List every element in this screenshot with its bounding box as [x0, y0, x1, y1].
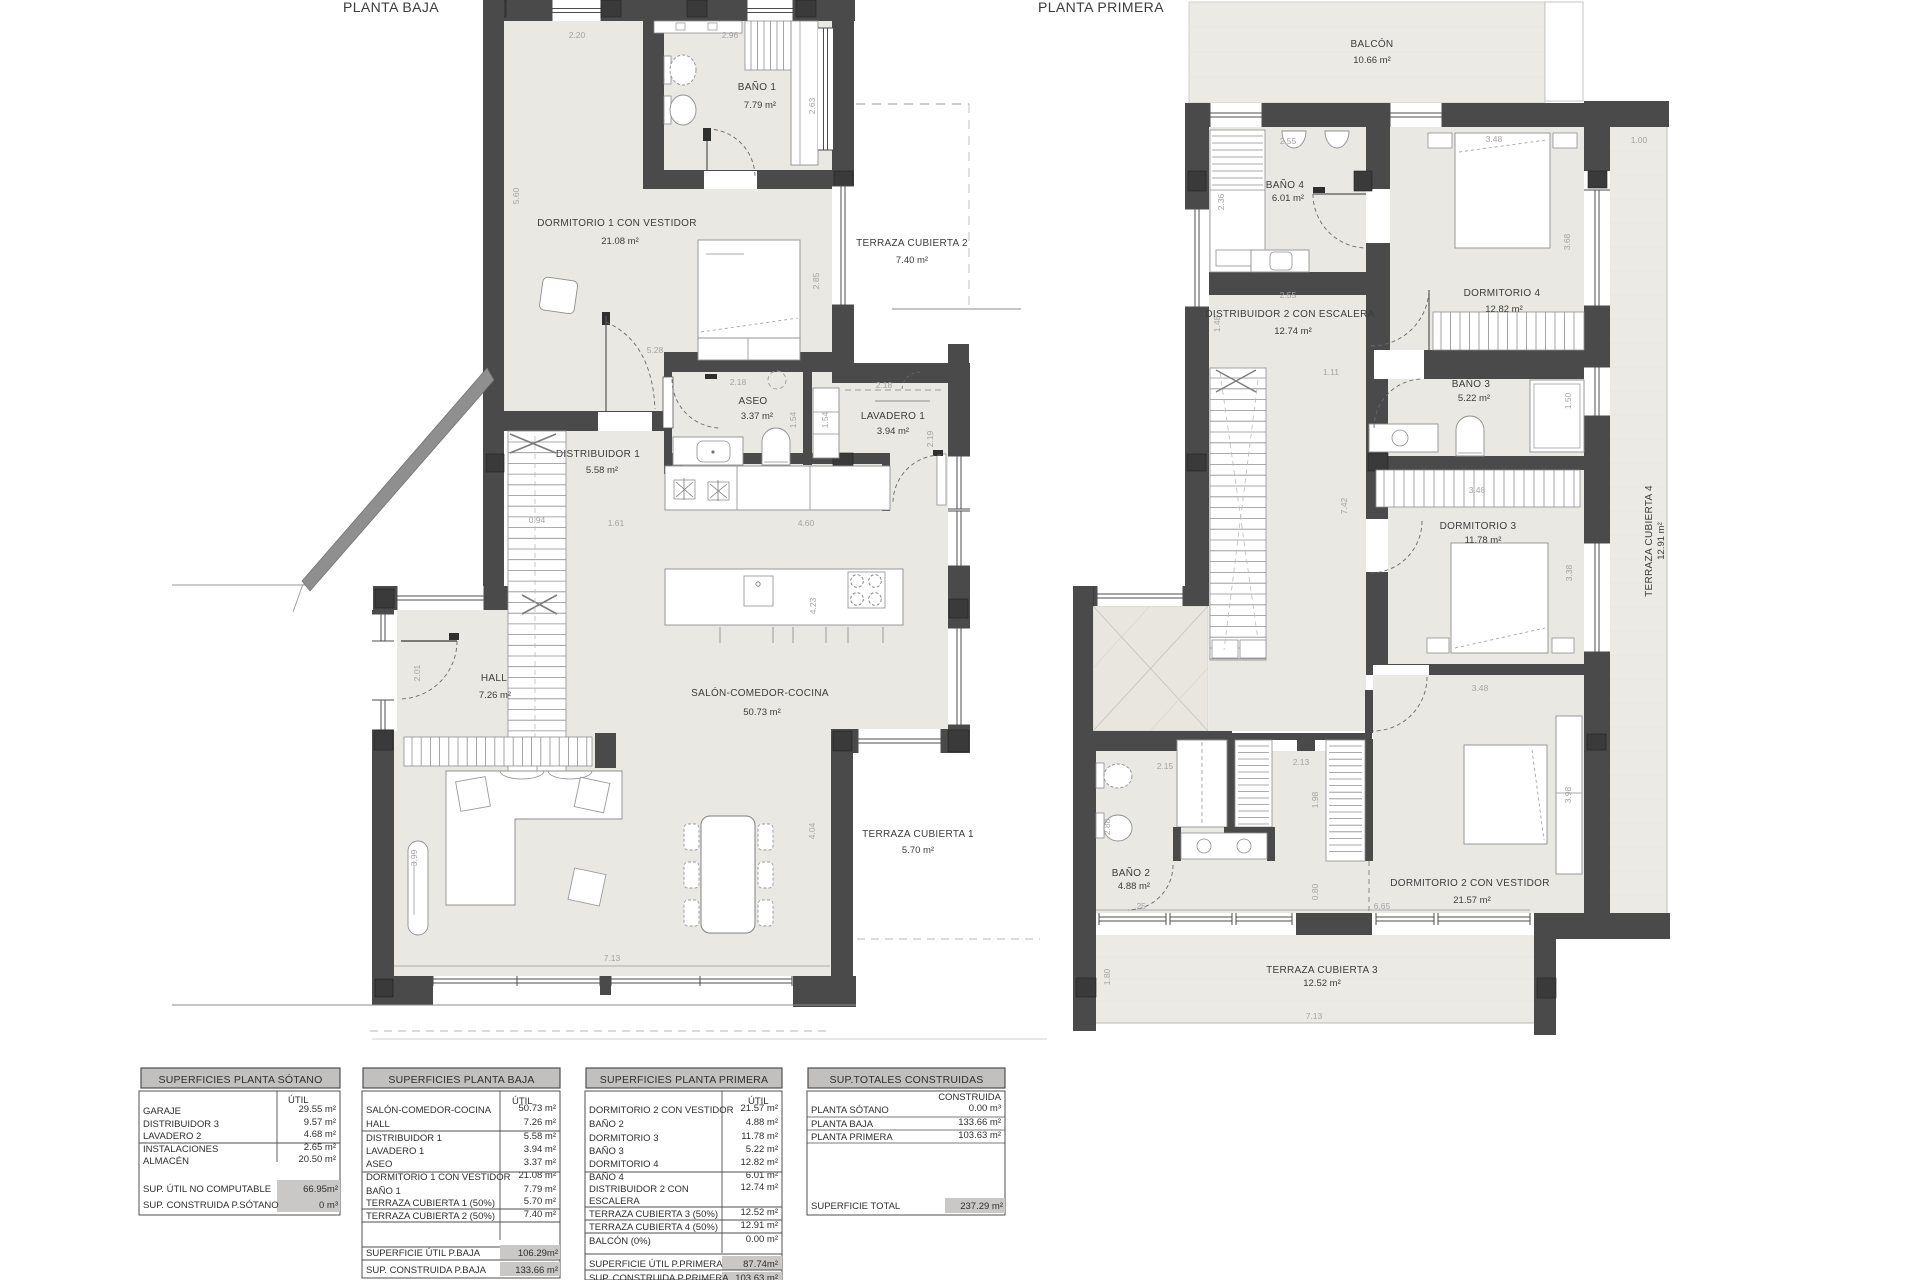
svg-text:SUPERFICIE ÚTIL P.PRIMERA: SUPERFICIE ÚTIL P.PRIMERA	[589, 1259, 723, 1270]
svg-text:DORMITORIO 3: DORMITORIO 3	[589, 1133, 659, 1144]
svg-text:4.23: 4.23	[808, 597, 818, 614]
svg-text:.25: .25	[1134, 901, 1146, 911]
svg-text:2.18: 2.18	[730, 377, 747, 387]
svg-text:CONSTRUIDA: CONSTRUIDA	[938, 1092, 1001, 1103]
svg-text:BALCÓN (0%): BALCÓN (0%)	[589, 1236, 651, 1247]
svg-text:5.58 m²: 5.58 m²	[524, 1131, 556, 1142]
svg-text:5.60: 5.60	[511, 187, 521, 204]
svg-text:0.00 m²: 0.00 m²	[746, 1234, 778, 1245]
svg-text:SUPERFICIES PLANTA PRIMERA: SUPERFICIES PLANTA PRIMERA	[600, 1074, 768, 1086]
svg-text:7.42: 7.42	[1339, 497, 1349, 514]
svg-text:3.38: 3.38	[1564, 564, 1574, 581]
svg-text:3.48: 3.48	[1469, 485, 1486, 495]
svg-text:SUPERFICIE ÚTIL P.BAJA: SUPERFICIE ÚTIL P.BAJA	[366, 1248, 481, 1259]
svg-text:SUPERFICIE TOTAL: SUPERFICIE TOTAL	[811, 1201, 900, 1212]
svg-text:5.22 m²: 5.22 m²	[1458, 393, 1490, 404]
svg-text:SUPERFICIES PLANTA BAJA: SUPERFICIES PLANTA BAJA	[388, 1074, 534, 1086]
svg-text:5.28: 5.28	[647, 345, 664, 355]
svg-text:87.74m²: 87.74m²	[743, 1259, 778, 1270]
svg-text:2.19: 2.19	[925, 430, 935, 447]
svg-text:2.13: 2.13	[1293, 757, 1310, 767]
svg-text:SUP. CONSTRUIDA P.PRIMERA: SUP. CONSTRUIDA P.PRIMERA	[589, 1273, 729, 1280]
svg-text:1.54: 1.54	[788, 411, 798, 428]
svg-text:BAÑO 1: BAÑO 1	[738, 80, 777, 93]
svg-text:SUP.TOTALES CONSTRUIDAS: SUP.TOTALES CONSTRUIDAS	[830, 1074, 984, 1086]
svg-text:DORMITORIO 2 CON VESTIDOR: DORMITORIO 2 CON VESTIDOR	[589, 1105, 734, 1116]
svg-text:50.73 m²: 50.73 m²	[743, 707, 781, 718]
svg-text:3.48: 3.48	[1472, 683, 1489, 693]
svg-text:12.52 m²: 12.52 m²	[1303, 978, 1341, 989]
svg-text:0.94: 0.94	[529, 515, 546, 525]
svg-text:12.82 m²: 12.82 m²	[1485, 304, 1523, 315]
svg-text:TERRAZA CUBIERTA 2: TERRAZA CUBIERTA 2	[856, 238, 968, 249]
svg-text:11.78 m²: 11.78 m²	[741, 1131, 778, 1142]
svg-text:SUP. ÚTIL NO COMPUTABLE: SUP. ÚTIL NO COMPUTABLE	[143, 1184, 271, 1195]
svg-text:DISTRIBUIDOR 1: DISTRIBUIDOR 1	[366, 1133, 442, 1144]
svg-text:1.80: 1.80	[1102, 968, 1112, 985]
svg-text:PLANTA SÓTANO: PLANTA SÓTANO	[811, 1105, 889, 1116]
svg-text:21.08 m²: 21.08 m²	[601, 236, 639, 247]
svg-text:BAÑO 2: BAÑO 2	[589, 1119, 624, 1130]
svg-text:2.96: 2.96	[722, 30, 739, 40]
svg-text:7.79 m²: 7.79 m²	[744, 100, 776, 111]
svg-text:SUPERFICIES PLANTA SÓTANO: SUPERFICIES PLANTA SÓTANO	[159, 1073, 323, 1086]
svg-text:BALCÓN: BALCÓN	[1351, 37, 1394, 50]
svg-text:20.50 m²: 20.50 m²	[299, 1154, 337, 1165]
svg-text:133.66 m²: 133.66 m²	[515, 1265, 558, 1276]
svg-text:ASEO: ASEO	[739, 396, 768, 407]
svg-text:103.63 m²: 103.63 m²	[958, 1130, 1001, 1141]
svg-text:2.85: 2.85	[811, 272, 821, 289]
svg-text:TERRAZA CUBIERTA 3 (50%): TERRAZA CUBIERTA 3 (50%)	[589, 1209, 718, 1220]
svg-text:29.55 m²: 29.55 m²	[299, 1104, 337, 1115]
svg-text:TERRAZA CUBIERTA 3: TERRAZA CUBIERTA 3	[1266, 965, 1378, 976]
svg-text:5.58 m²: 5.58 m²	[586, 465, 618, 476]
svg-text:INSTALACIONES: INSTALACIONES	[143, 1144, 218, 1155]
svg-text:2.55: 2.55	[1280, 290, 1297, 300]
svg-text:DORMITORIO 4: DORMITORIO 4	[1464, 288, 1541, 299]
svg-text:66.95m²: 66.95m²	[303, 1184, 338, 1195]
svg-text:3.48: 3.48	[1486, 134, 1503, 144]
svg-text:5.70 m²: 5.70 m²	[524, 1196, 556, 1207]
svg-text:1.00: 1.00	[1631, 135, 1648, 145]
svg-text:4.88 m²: 4.88 m²	[746, 1117, 778, 1128]
svg-text:133.66 m²: 133.66 m²	[958, 1117, 1001, 1128]
svg-text:4.68 m²: 4.68 m²	[304, 1129, 336, 1140]
svg-text:DORMITORIO 3: DORMITORIO 3	[1440, 521, 1517, 532]
svg-text:HALL: HALL	[366, 1119, 390, 1130]
svg-text:3.68: 3.68	[1562, 233, 1572, 250]
svg-text:TERRAZA CUBIERTA 2 (50%): TERRAZA CUBIERTA 2 (50%)	[366, 1211, 495, 1222]
svg-text:237.29 m²: 237.29 m²	[960, 1201, 1003, 1212]
svg-text:0 m³: 0 m³	[319, 1200, 338, 1211]
svg-text:7.13: 7.13	[1306, 1011, 1323, 1021]
svg-text:5.22 m²: 5.22 m²	[746, 1144, 778, 1155]
svg-text:GARAJE: GARAJE	[143, 1106, 181, 1117]
svg-text:LAVADERO 1: LAVADERO 1	[366, 1146, 424, 1157]
svg-text:3.94 m²: 3.94 m²	[877, 426, 909, 437]
svg-text:BAÑO 3: BAÑO 3	[1452, 377, 1491, 390]
svg-text:3.37 m²: 3.37 m²	[524, 1157, 556, 1168]
svg-text:1.54: 1.54	[820, 411, 830, 428]
svg-text:BAÑO 4: BAÑO 4	[1266, 178, 1305, 191]
svg-text:ASEO: ASEO	[366, 1159, 392, 1170]
svg-text:2.55: 2.55	[1280, 136, 1297, 146]
svg-text:1.11: 1.11	[1323, 367, 1339, 377]
svg-text:DORMITORIO 4: DORMITORIO 4	[589, 1159, 659, 1170]
svg-text:2.18: 2.18	[876, 380, 893, 390]
svg-text:DISTRIBUIDOR 2 CON: DISTRIBUIDOR 2 CON	[589, 1184, 689, 1195]
svg-text:2.15: 2.15	[1157, 761, 1174, 771]
svg-text:12.52 m²: 12.52 m²	[741, 1207, 779, 1218]
svg-text:7.40 m²: 7.40 m²	[896, 255, 928, 266]
svg-text:12.74 m²: 12.74 m²	[1274, 326, 1312, 337]
svg-text:BAÑO 3: BAÑO 3	[589, 1146, 624, 1157]
svg-text:4.60: 4.60	[798, 518, 815, 528]
svg-text:3.94 m²: 3.94 m²	[524, 1144, 556, 1155]
svg-text:2.65 m²: 2.65 m²	[304, 1142, 336, 1153]
svg-text:12.91 m²: 12.91 m²	[1656, 522, 1667, 560]
svg-text:ESCALERA: ESCALERA	[589, 1196, 640, 1207]
svg-text:PLANTA PRIMERA: PLANTA PRIMERA	[811, 1132, 893, 1143]
svg-text:2.63: 2.63	[807, 97, 817, 114]
svg-text:LAVADERO 2: LAVADERO 2	[143, 1131, 201, 1142]
svg-text:2.01: 2.01	[412, 664, 422, 681]
svg-text:BAÑO 1: BAÑO 1	[366, 1186, 401, 1197]
svg-text:HALL: HALL	[481, 673, 507, 684]
svg-text:PLANTA PRIMERA: PLANTA PRIMERA	[1038, 0, 1164, 15]
svg-text:DORMITORIO 2 CON VESTIDOR: DORMITORIO 2 CON VESTIDOR	[1390, 878, 1550, 889]
svg-text:PLANTA BAJA: PLANTA BAJA	[343, 0, 439, 15]
svg-text:3.98: 3.98	[1563, 786, 1573, 803]
svg-text:4.04: 4.04	[807, 822, 817, 839]
svg-text:2.36: 2.36	[1216, 193, 1226, 210]
svg-text:3.99: 3.99	[409, 849, 419, 866]
svg-text:7.79 m²: 7.79 m²	[524, 1184, 556, 1195]
svg-text:SALÓN-COMEDOR-COCINA: SALÓN-COMEDOR-COCINA	[691, 686, 829, 699]
svg-text:PLANTA BAJA: PLANTA BAJA	[811, 1119, 874, 1130]
svg-text:DISTRIBUIDOR 1: DISTRIBUIDOR 1	[556, 449, 640, 460]
svg-text:SALÓN-COMEDOR-COCINA: SALÓN-COMEDOR-COCINA	[366, 1105, 492, 1116]
svg-text:103.63 m²: 103.63 m²	[735, 1273, 778, 1280]
svg-text:21.57 m²: 21.57 m²	[741, 1103, 779, 1114]
svg-text:4.88 m²: 4.88 m²	[1118, 881, 1150, 892]
svg-text:2.20: 2.20	[569, 30, 586, 40]
svg-text:6.65: 6.65	[1374, 901, 1391, 911]
svg-text:1.61: 1.61	[608, 518, 625, 528]
svg-text:9.57 m²: 9.57 m²	[304, 1117, 336, 1128]
svg-text:1.98: 1.98	[1310, 791, 1320, 808]
svg-text:DORMITORIO 1 CON VESTIDOR: DORMITORIO 1 CON VESTIDOR	[366, 1172, 511, 1183]
svg-text:12.91 m²: 12.91 m²	[741, 1220, 779, 1231]
svg-text:TERRAZA CUBIERTA 4: TERRAZA CUBIERTA 4	[1644, 485, 1655, 597]
svg-text:5.70 m²: 5.70 m²	[902, 845, 934, 856]
svg-text:12.82 m²: 12.82 m²	[741, 1157, 779, 1168]
svg-text:BAÑO 2: BAÑO 2	[1112, 866, 1151, 879]
svg-text:DISTRIBUIDOR 3: DISTRIBUIDOR 3	[143, 1119, 219, 1130]
svg-text:BAÑO 4: BAÑO 4	[589, 1172, 624, 1183]
svg-text:TERRAZA CUBIERTA 1: TERRAZA CUBIERTA 1	[862, 829, 974, 840]
svg-text:10.66 m²: 10.66 m²	[1353, 55, 1391, 66]
svg-text:11.78 m²: 11.78 m²	[1465, 535, 1502, 546]
svg-text:TERRAZA CUBIERTA 4 (50%): TERRAZA CUBIERTA 4 (50%)	[589, 1222, 718, 1233]
svg-text:1.50: 1.50	[1563, 392, 1573, 409]
svg-text:LAVADERO 1: LAVADERO 1	[861, 411, 925, 422]
svg-text:7.26 m²: 7.26 m²	[479, 690, 511, 701]
svg-text:SUP. CONSTRUIDA P.SÓTANO: SUP. CONSTRUIDA P.SÓTANO	[143, 1200, 279, 1211]
svg-text:3.37 m²: 3.37 m²	[741, 411, 773, 422]
svg-text:TERRAZA CUBIERTA 1 (50%): TERRAZA CUBIERTA 1 (50%)	[366, 1198, 495, 1209]
svg-text:DISTRIBUIDOR 2 CON ESCALERA: DISTRIBUIDOR 2 CON ESCALERA	[1205, 309, 1374, 320]
svg-text:7.26 m²: 7.26 m²	[524, 1117, 556, 1128]
svg-text:12.74 m²: 12.74 m²	[741, 1182, 779, 1193]
svg-text:DORMITORIO 1 CON VESTIDOR: DORMITORIO 1 CON VESTIDOR	[537, 218, 697, 229]
svg-text:50.73 m²: 50.73 m²	[519, 1103, 557, 1114]
svg-text:6.01 m²: 6.01 m²	[1272, 193, 1304, 204]
svg-text:106.29m²: 106.29m²	[518, 1248, 558, 1259]
svg-text:0.00 m³: 0.00 m³	[969, 1103, 1001, 1114]
svg-text:7.40 m²: 7.40 m²	[524, 1209, 556, 1220]
svg-text:ALMACÉN: ALMACÉN	[143, 1156, 189, 1167]
svg-text:0.80: 0.80	[1310, 883, 1320, 900]
svg-text:7.13: 7.13	[604, 953, 621, 963]
svg-text:SUP. CONSTRUIDA P.BAJA: SUP. CONSTRUIDA P.BAJA	[366, 1265, 487, 1276]
svg-text:2.88: 2.88	[1102, 818, 1112, 835]
svg-text:21.57 m²: 21.57 m²	[1453, 895, 1491, 906]
